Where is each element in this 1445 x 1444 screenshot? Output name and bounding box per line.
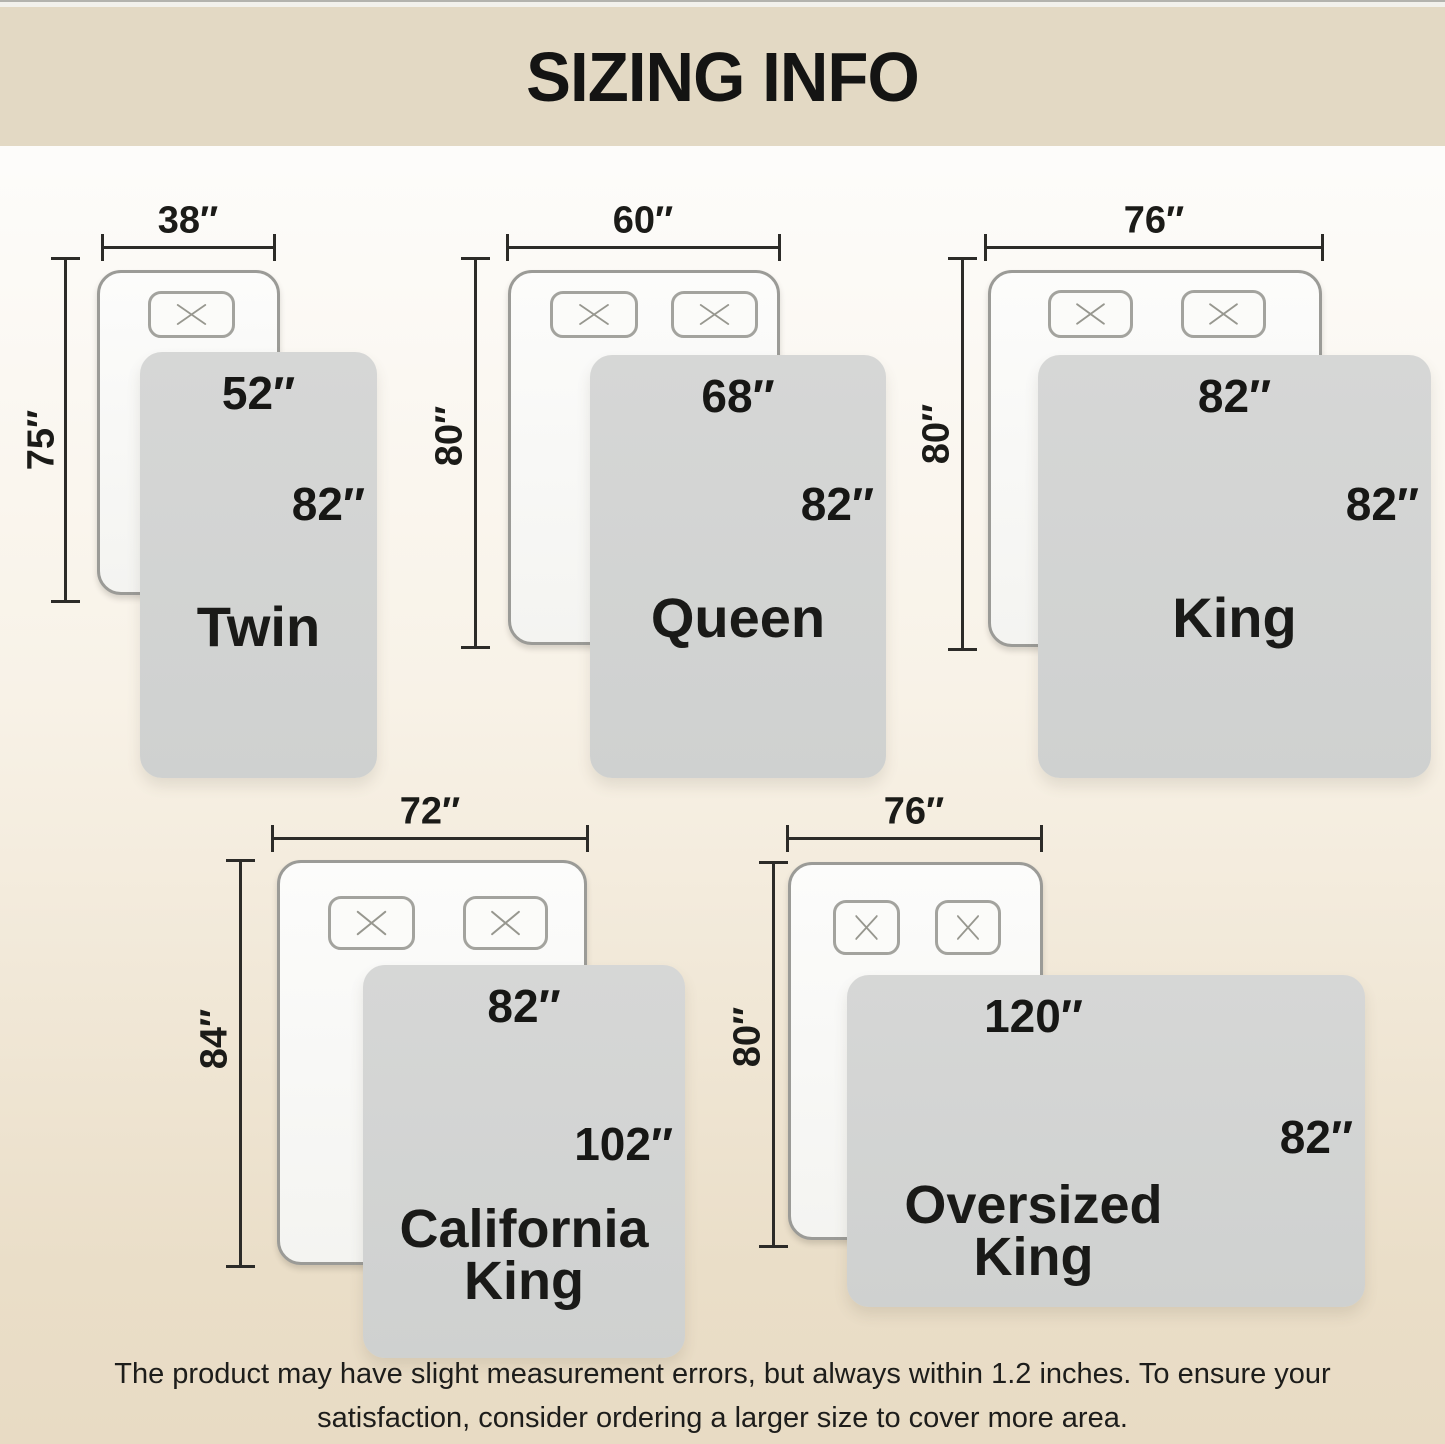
bed-width-dimension-line	[272, 837, 588, 840]
pillow-x-icon	[151, 294, 232, 335]
page-title: SIZING INFO	[526, 37, 919, 117]
top-strip	[0, 0, 1445, 7]
blanket-length-label: 102″	[574, 1117, 673, 1171]
pillow-icon	[935, 900, 1001, 955]
blanket-queen: 68″ 82″ Queen	[590, 355, 886, 778]
bed-length-dimension-line	[239, 860, 242, 1267]
bed-length-dimension-line	[961, 258, 964, 650]
sizing-info-page: SIZING INFO 38″ 75″ 52″ 82″ Twin 60″ 80″	[0, 0, 1445, 1444]
blanket-width-label: 82″	[487, 979, 560, 1033]
size-name: California King	[379, 1203, 669, 1307]
bed-width-label: 76″	[1124, 200, 1184, 243]
disclaimer-line-2: satisfaction, consider ordering a larger…	[0, 1396, 1445, 1440]
bed-width-dimension-line	[102, 246, 275, 249]
blanket-length-label: 82″	[1280, 1110, 1353, 1164]
blanket-length-label: 82″	[1346, 477, 1419, 531]
bed-width-label: 38″	[158, 200, 218, 243]
bed-length-label: 80″	[429, 406, 472, 466]
pillow-icon	[833, 900, 900, 955]
pillow-x-icon	[836, 903, 897, 952]
size-name: Oversized King	[853, 1179, 1213, 1283]
blanket-twin: 52″ 82″ Twin	[140, 352, 377, 778]
bed-length-dimension-line	[474, 258, 477, 648]
pillow-x-icon	[331, 899, 412, 947]
bed-width-dimension-line	[985, 246, 1323, 249]
blanket-length-label: 82″	[292, 477, 365, 531]
blanket-king: 82″ 82″ King	[1038, 355, 1431, 778]
pillow-icon	[328, 896, 415, 950]
pillow-x-icon	[938, 903, 998, 952]
bed-width-label: 72″	[400, 791, 460, 834]
pillow-x-icon	[1184, 293, 1263, 335]
blanket-oversized-king: 120″ 82″ Oversized King	[847, 975, 1365, 1307]
pillow-icon	[148, 291, 235, 338]
header-band: SIZING INFO	[0, 7, 1445, 146]
size-name: Twin	[152, 598, 365, 656]
pillow-x-icon	[1051, 293, 1130, 335]
pillow-icon	[550, 291, 638, 338]
pillow-icon	[1048, 290, 1133, 338]
bed-length-label: 80″	[727, 1007, 770, 1067]
size-name: Queen	[605, 589, 871, 647]
bed-length-dimension-line	[64, 258, 67, 602]
blanket-width-label: 82″	[1198, 369, 1271, 423]
pillow-x-icon	[553, 294, 635, 335]
disclaimer: The product may have slight measurement …	[0, 1352, 1445, 1440]
pillow-x-icon	[674, 294, 755, 335]
blanket-length-label: 82″	[801, 477, 874, 531]
bed-length-label: 80″	[916, 404, 959, 464]
blanket-width-label: 68″	[701, 369, 774, 423]
bed-width-label: 76″	[884, 791, 944, 834]
bed-length-dimension-line	[772, 862, 775, 1247]
bed-width-label: 60″	[613, 200, 673, 243]
disclaimer-line-1: The product may have slight measurement …	[0, 1352, 1445, 1396]
pillow-x-icon	[466, 899, 545, 947]
bed-length-label: 75″	[21, 410, 64, 470]
pillow-icon	[463, 896, 548, 950]
bed-width-dimension-line	[507, 246, 780, 249]
pillow-icon	[1181, 290, 1266, 338]
blanket-width-label: 120″	[984, 989, 1083, 1043]
size-name: King	[1058, 589, 1412, 647]
bed-width-dimension-line	[787, 837, 1042, 840]
bed-length-label: 84″	[194, 1009, 237, 1069]
blanket-california-king: 82″ 102″ California King	[363, 965, 685, 1358]
pillow-icon	[671, 291, 758, 338]
blanket-width-label: 52″	[222, 366, 295, 420]
